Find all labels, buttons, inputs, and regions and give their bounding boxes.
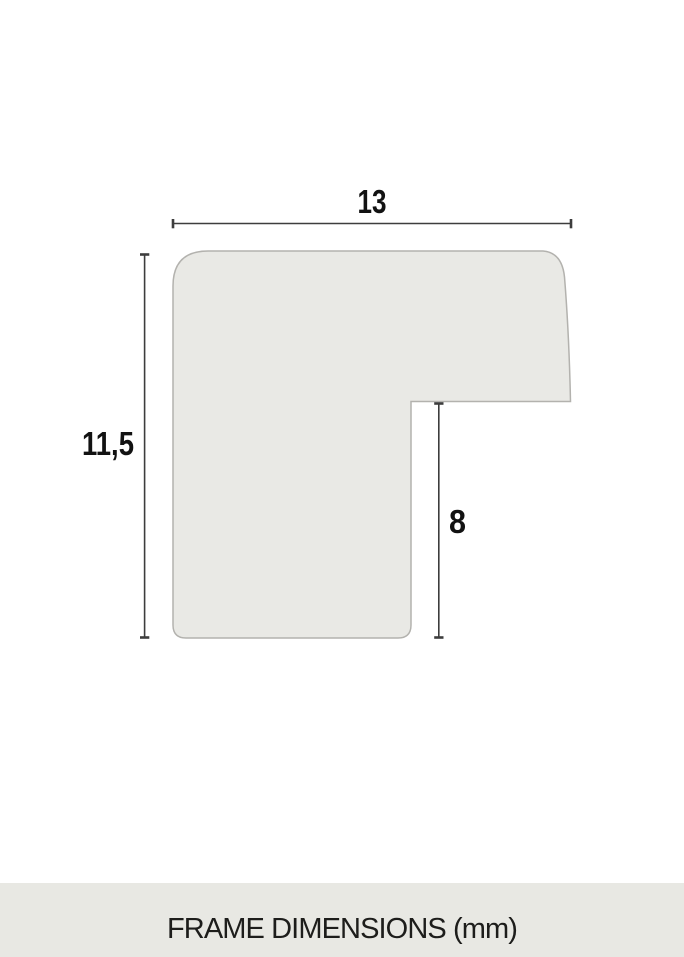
svg-text:13: 13 <box>358 183 387 220</box>
svg-text:8: 8 <box>449 503 466 540</box>
svg-text:11,5: 11,5 <box>82 425 134 462</box>
